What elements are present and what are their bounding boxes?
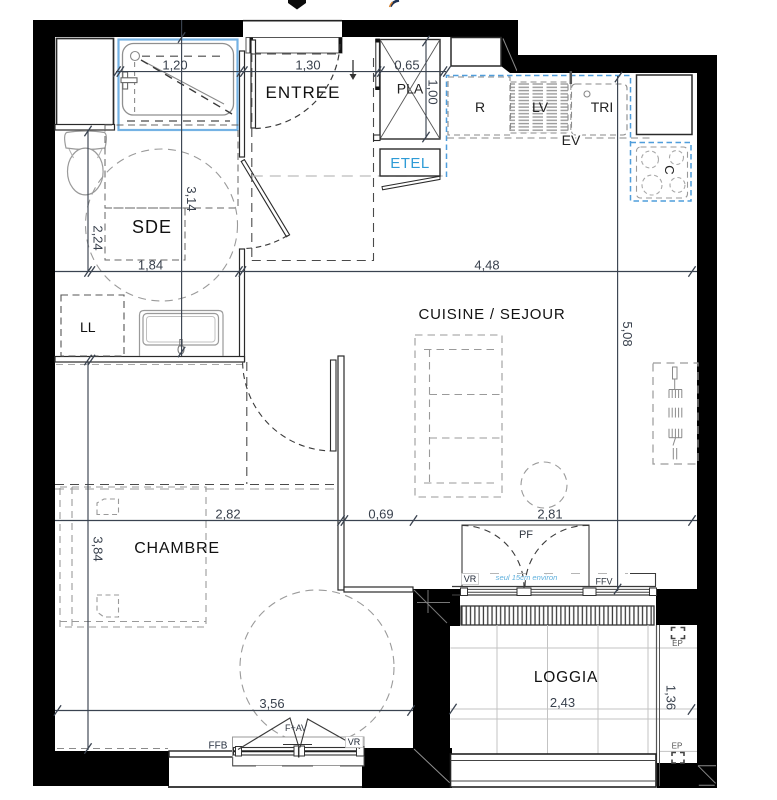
svg-text:CUISINE / SEJOUR: CUISINE / SEJOUR <box>419 306 566 323</box>
svg-text:CHAMBRE: CHAMBRE <box>134 540 220 557</box>
svg-text:ETEL: ETEL <box>390 155 430 172</box>
svg-text:VR: VR <box>348 737 361 747</box>
svg-text:LOGGIA: LOGGIA <box>534 669 598 686</box>
svg-text:LV: LV <box>532 99 549 115</box>
svg-text:EP: EP <box>672 742 683 751</box>
svg-text:0,69: 0,69 <box>368 507 393 522</box>
svg-text:3,56: 3,56 <box>259 696 284 711</box>
svg-text:seul 15cm environ: seul 15cm environ <box>496 573 558 582</box>
svg-text:VR: VR <box>464 574 477 584</box>
svg-text:1,30: 1,30 <box>295 58 320 73</box>
svg-text:PF: PF <box>519 529 533 541</box>
svg-text:SDE: SDE <box>132 217 172 237</box>
svg-text:LL: LL <box>80 319 96 335</box>
svg-text:3,84: 3,84 <box>91 536 106 561</box>
svg-text:EP: EP <box>672 639 683 648</box>
svg-text:ENTREE: ENTREE <box>266 83 341 102</box>
svg-text:4,48: 4,48 <box>474 258 499 273</box>
svg-text:5,08: 5,08 <box>620 321 635 346</box>
svg-text:2,43: 2,43 <box>550 695 575 710</box>
svg-text:2,82: 2,82 <box>215 507 240 522</box>
svg-text:3,14: 3,14 <box>184 186 199 211</box>
svg-text:2,81: 2,81 <box>537 507 562 522</box>
svg-text:F+AV: F+AV <box>285 723 307 733</box>
svg-text:0,65: 0,65 <box>394 58 419 73</box>
svg-text:EV: EV <box>562 132 581 148</box>
svg-text:FFV: FFV <box>596 577 613 587</box>
svg-text:PLA: PLA <box>397 81 424 97</box>
svg-text:1,36: 1,36 <box>664 685 679 710</box>
svg-text:C: C <box>662 165 677 174</box>
svg-text:TRI: TRI <box>591 99 614 115</box>
svg-text:1,20: 1,20 <box>162 58 187 73</box>
svg-text:2,24: 2,24 <box>91 225 106 250</box>
svg-text:1,84: 1,84 <box>138 258 163 273</box>
svg-text:R: R <box>475 99 485 115</box>
svg-text:1,00: 1,00 <box>426 79 441 104</box>
svg-text:FFB: FFB <box>209 741 228 752</box>
